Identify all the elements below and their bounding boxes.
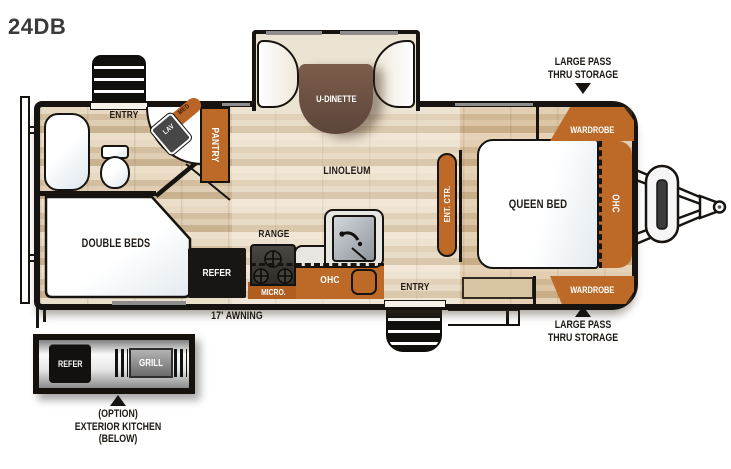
- tub: [44, 113, 90, 191]
- step-bracket-rib: [506, 309, 509, 326]
- wardrobe-top-divider: [536, 107, 539, 141]
- range-label: RANGE: [252, 228, 297, 240]
- hitch-ring: [714, 202, 725, 213]
- exterior-kitchen-caption: (OPTION) EXTERIOR KITCHEN (BELOW): [33, 395, 203, 446]
- awning-label: 17' AWNING: [201, 310, 273, 322]
- bath-wall: [38, 191, 156, 196]
- exterior-kitchen-box: REFER GRILL: [33, 334, 195, 394]
- ohc-end-box: [351, 269, 377, 295]
- wardrobe-bottom: WARDROBE: [550, 276, 634, 304]
- entry-steps-bottom: [386, 307, 442, 352]
- storage-bottom-line2: THRU STORAGE: [539, 332, 627, 345]
- arrow-down-icon: [575, 83, 591, 94]
- exterior-grill: GRILL: [129, 348, 173, 378]
- hitch-bars: [636, 170, 714, 244]
- kitchen-sink: [332, 215, 376, 262]
- exterior-refer-label: REFER: [58, 359, 82, 369]
- grill-slats-left: [115, 349, 128, 377]
- hitch-coupler: [700, 196, 716, 218]
- exterior-caption-line3: (BELOW): [50, 433, 186, 446]
- wardrobe-bottom-divider: [533, 276, 536, 304]
- u-dinette-label: U-DINETTE: [316, 94, 357, 105]
- floorplan-24db: 24DB TUB: [0, 0, 731, 469]
- grill-slats-right: [174, 349, 187, 377]
- window-top-wall: [455, 103, 533, 107]
- pantry-label: PANTRY: [209, 121, 221, 169]
- storage-annotation-bottom: LARGE PASS THRU STORAGE: [528, 306, 638, 344]
- linoleum-label: LINOLEUM: [319, 165, 375, 177]
- step-bracket: [448, 309, 520, 326]
- page-title: 24DB: [8, 14, 66, 40]
- storage-annotation-top: LARGE PASS THRU STORAGE: [528, 56, 638, 94]
- arrow-up-icon: [575, 306, 591, 317]
- ohc-dashed-line: [250, 263, 384, 266]
- exterior-caption-line2: EXTERIOR KITCHEN: [50, 421, 186, 434]
- slide-window-left: [266, 31, 322, 35]
- refer-label: REFER: [203, 267, 231, 279]
- hitch-ring-hole: [718, 205, 722, 209]
- ohc-bedroom-label: OHC: [610, 188, 621, 220]
- toilet-bowl: [100, 156, 130, 189]
- propane-tank: [646, 166, 678, 242]
- entry-top-label: ENTRY: [100, 109, 148, 121]
- dinette-table: U-DINETTE: [299, 64, 373, 134]
- storage-bottom-line1: LARGE PASS: [539, 319, 627, 332]
- queen-bed-label: QUEEN BED: [490, 197, 586, 211]
- double-beds-label: DOUBLE BEDS: [68, 238, 164, 250]
- refrigerator: REFER: [188, 248, 246, 298]
- exterior-caption-line1: (OPTION): [50, 408, 186, 421]
- exterior-kitchen-panel: REFER GRILL: [39, 340, 189, 388]
- micro-label: MICRO.: [261, 285, 286, 299]
- exterior-refer: REFER: [49, 344, 91, 383]
- exterior-arrow-up-icon: [110, 395, 126, 406]
- ohc-kitchen-label: OHC: [306, 274, 354, 286]
- tv-wall-line: [459, 150, 462, 262]
- entry-door-bottom: [384, 300, 446, 308]
- entry-steps-top: [92, 55, 146, 103]
- wardrobe-bottom-label: WARDROBE: [570, 285, 614, 296]
- propane-tank-slot: [657, 180, 667, 229]
- window-top-wall-2: [222, 103, 250, 107]
- entry-bottom-label: ENTRY: [389, 281, 440, 293]
- exterior-grill-assembly: GRILL: [115, 346, 187, 380]
- bed-foot-bench: [462, 277, 534, 299]
- storage-top-line2: THRU STORAGE: [539, 69, 627, 82]
- wardrobe-top-label: WARDROBE: [570, 121, 614, 141]
- ent-ctr-label: ENT. CTR.: [442, 180, 452, 228]
- exterior-grill-label: GRILL: [139, 358, 163, 369]
- window-bottom-wall: [112, 301, 186, 305]
- slide-window-right: [340, 31, 398, 35]
- storage-top-line1: LARGE PASS: [539, 56, 627, 69]
